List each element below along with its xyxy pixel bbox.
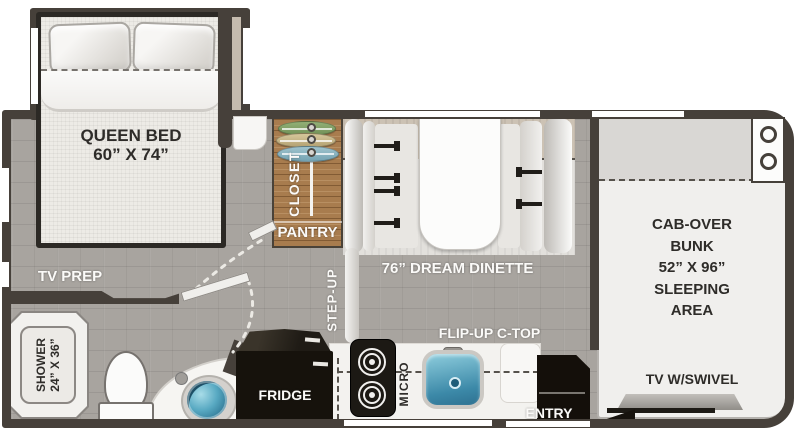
shower-label-line2: 24” X 36” <box>48 338 62 392</box>
window-opening <box>592 111 684 117</box>
window-opening <box>31 28 38 104</box>
fridge-label: FRIDGE <box>238 387 332 403</box>
closet-label: CLOSET <box>286 151 302 217</box>
entry-step-edge <box>539 392 585 394</box>
bedroom-pier-wall <box>218 8 232 148</box>
queen-bed-size-label: 60” X 74” <box>46 145 216 165</box>
shower-label-line1: SHOWER <box>34 338 48 392</box>
tv-prep-label: TV PREP <box>20 268 120 285</box>
door-swing-arc <box>233 280 253 352</box>
cup-holder-icon <box>760 126 777 143</box>
rv-floorplan: CLOSET PANTRY STEP-UP QUEEN BED 60” X 74… <box>0 0 800 430</box>
bunk-label-line: SLEEPING <box>612 279 772 301</box>
flip-up-ctop-label: FLIP-UP C-TOP <box>417 325 562 341</box>
pantry-label: PANTRY <box>272 224 343 241</box>
bunk-label-line: 52” X 96” <box>612 257 772 279</box>
bunk-label-line: CAB-OVER <box>612 214 772 236</box>
step-up-label: STEP-UP <box>325 268 340 331</box>
cup-holder-icon <box>760 153 777 170</box>
window-opening <box>365 111 540 117</box>
bunk-label-line: AREA <box>612 300 772 322</box>
dinette-label: 76” DREAM DINETTE <box>355 260 560 277</box>
window-opening <box>344 420 492 426</box>
cab-over-bunk-label: CAB-OVER BUNK 52” X 96” SLEEPING AREA <box>612 214 772 322</box>
shower-label: SHOWER 24” X 36” <box>34 338 62 392</box>
bunk-label-line: BUNK <box>612 236 772 258</box>
tv-swivel-label: TV W/SWIVEL <box>612 371 772 387</box>
bed-sheet-fold <box>41 69 221 112</box>
nightstand <box>233 116 267 150</box>
queen-bed-label: QUEEN BED <box>46 126 216 146</box>
entry-door-opening <box>506 421 590 427</box>
window-opening <box>243 28 250 104</box>
micro-label: MICRO <box>397 362 411 407</box>
pillow <box>48 22 132 75</box>
sink-drain-icon <box>449 377 461 389</box>
pillow <box>132 22 216 75</box>
window-opening <box>2 262 9 287</box>
window-opening <box>2 168 9 222</box>
entry-label: ENTRY <box>516 405 582 421</box>
fridge-handle-icon <box>313 362 328 367</box>
